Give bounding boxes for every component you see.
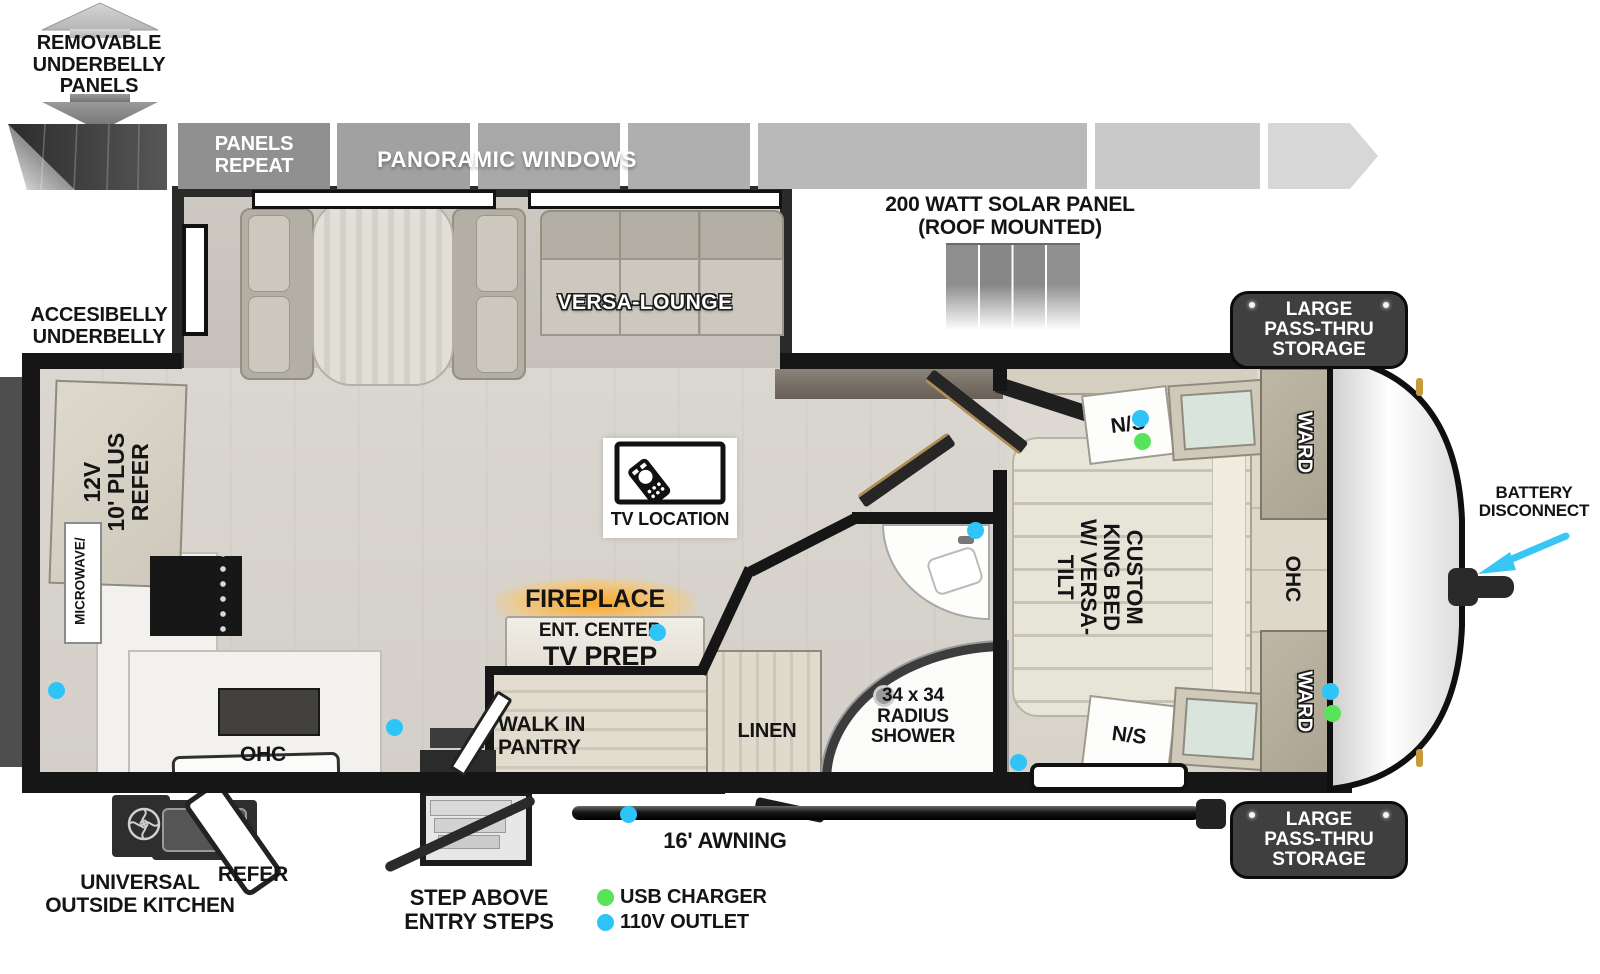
tv-location-label: TV LOCATION: [603, 510, 737, 529]
bedroom-divider-stub: [993, 367, 1007, 391]
king-bed-label-wrap: CUSTOM KING BED W/ VERSA-TILT: [1030, 445, 1170, 709]
fireplace-label: FIREPLACE: [505, 586, 685, 613]
linen-closet: [706, 650, 822, 776]
kitchen-ohc-cabinet: [218, 688, 320, 736]
panels-repeat-box: PANELS REPEAT: [178, 123, 330, 189]
bath-wall-horizontal: [852, 512, 1007, 524]
top-wall-left: [22, 353, 182, 369]
bedroom-ohc-label-wrap: OHC: [1252, 536, 1332, 622]
step-above-entry-label: STEP ABOVE ENTRY STEPS: [388, 886, 570, 934]
microwave-label: MICROWAVE/: [74, 537, 88, 625]
slideout-window-side: [182, 224, 208, 336]
panels-repeat-label: PANELS REPEAT: [215, 134, 293, 177]
bedroom-divider-wall: [993, 470, 1007, 773]
dinette-bench-left: [240, 208, 314, 380]
outlet-110v-dot: [620, 806, 637, 823]
overhead-glass-cabinet-top: [1167, 379, 1268, 462]
nightstand-bottom-label: N/S: [1111, 723, 1148, 750]
radius-shower-label: 34 x 34 RADIUS SHOWER: [848, 686, 978, 748]
wardrobe-bottom-label: WARD: [1294, 657, 1315, 745]
usb-charger-legend-label: USB CHARGER: [620, 887, 780, 909]
king-bed-label: CUSTOM KING BED W/ VERSA-TILT: [1054, 507, 1146, 647]
underbelly-panel-strip: [5, 118, 173, 196]
bedroom-window: [1030, 763, 1188, 791]
rear-wall: [22, 353, 40, 792]
solar-panel-graphic: [946, 243, 1080, 333]
battery-disconnect-label: BATTERY DISCONNECT: [1468, 484, 1600, 521]
outlet-110v-legend-dot: [597, 914, 614, 931]
banner-arrow-icon: [1350, 123, 1380, 189]
dinette-bench-right: [452, 208, 526, 380]
awning-bar: [572, 806, 1200, 820]
floorplan-diagram: REMOVABLE UNDERBELLY PANELS PANELS REPEA…: [0, 0, 1600, 974]
bedroom-ohc-label: OHC: [1281, 539, 1303, 619]
battery-disconnect-arrow-icon: [1470, 528, 1580, 584]
usb-charger-dot: [1324, 705, 1341, 722]
removable-underbelly-label: REMOVABLE UNDERBELLY PANELS: [20, 33, 178, 98]
bed-pillows: [1212, 449, 1246, 703]
wardrobe-top-label-wrap: WARD: [1260, 368, 1348, 516]
outlet-110v-dot: [649, 624, 666, 641]
window-banner-segment: [1268, 123, 1350, 189]
outlet-110v-dot: [48, 682, 65, 699]
outlet-110v-dot: [1322, 683, 1339, 700]
accessibelly-underbelly-label: ACCESIBELLY UNDERBELLY: [18, 305, 180, 348]
tv-icon: [603, 438, 737, 508]
awning-label: 16' AWNING: [640, 829, 810, 853]
versa-lounge-label: VERSA-LOUNGE: [545, 292, 745, 315]
overhead-glass-cabinet-bottom: [1169, 687, 1270, 772]
window-banner-segment: [1095, 123, 1260, 189]
slideout-window-top-right: [528, 190, 782, 209]
linen-label: LINEN: [722, 721, 812, 743]
window-banner-segment: [628, 123, 750, 189]
hall-cabinet-band: [775, 369, 1003, 399]
microwave-label-wrap: MICROWAVE/: [64, 522, 98, 640]
panoramic-windows-label: PANORAMIC WINDOWS: [372, 148, 642, 172]
outlet-110v-dot: [386, 719, 403, 736]
usb-charger-legend-dot: [597, 889, 614, 906]
window-banner-segment: [758, 123, 1087, 189]
wardrobe-top-label: WARD: [1294, 398, 1315, 486]
dinette-table: [312, 198, 454, 386]
kitchen-ohc-label: OHC: [228, 744, 298, 767]
tv-prep-label: TV PREP: [510, 642, 690, 671]
awning-end-cap: [1196, 799, 1226, 829]
wardrobe-bottom-label-wrap: WARD: [1260, 630, 1348, 772]
usb-charger-dot: [1134, 433, 1151, 450]
slideout-window-top-left: [252, 190, 496, 209]
tv-location-box: TV LOCATION: [603, 438, 737, 538]
pass-thru-storage-badge-top: LARGE PASS-THRU STORAGE: [1230, 291, 1408, 369]
outlet-110v-legend-label: 110V OUTLET: [620, 912, 780, 934]
fan-icon: [124, 804, 164, 844]
walk-in-pantry-label: WALK IN PANTRY: [498, 714, 618, 759]
solar-panel-label: 200 WATT SOLAR PANEL (ROOF MOUNTED): [880, 194, 1140, 239]
universal-outside-kitchen-label: UNIVERSAL OUTSIDE KITCHEN: [40, 872, 240, 917]
outlet-110v-dot: [967, 522, 984, 539]
outlet-110v-dot: [1010, 754, 1027, 771]
pass-thru-storage-badge-bottom: LARGE PASS-THRU STORAGE: [1230, 801, 1408, 879]
outlet-110v-dot: [1132, 410, 1149, 427]
